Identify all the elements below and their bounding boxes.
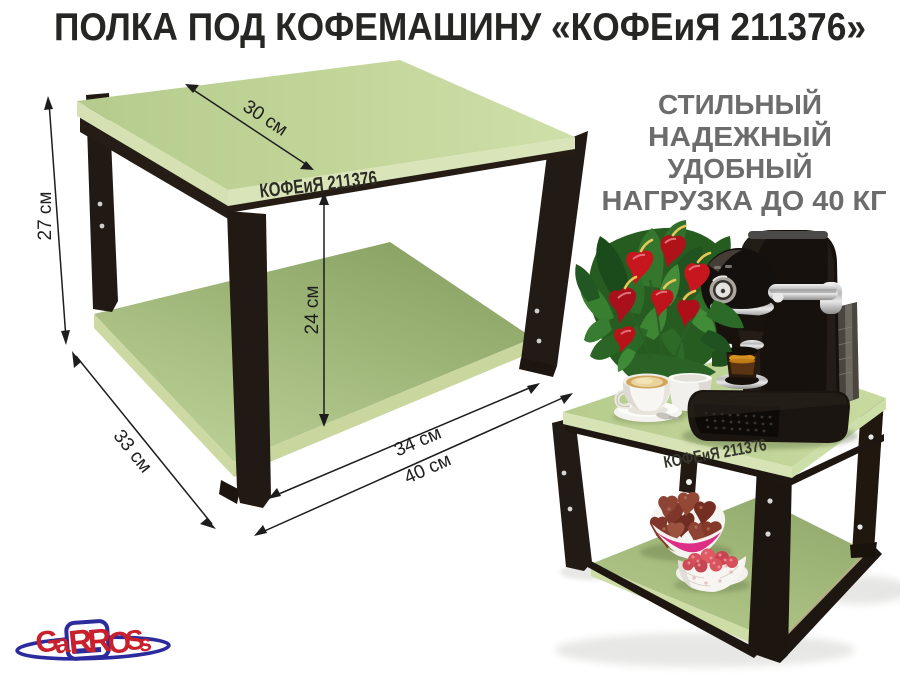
svg-text:НАДЕЖНЫЙ: НАДЕЖНЫЙ bbox=[648, 120, 832, 152]
svg-text:СТИЛЬНЫЙ: СТИЛЬНЫЙ bbox=[658, 88, 822, 120]
svg-text:27 см: 27 см bbox=[35, 192, 56, 241]
svg-text:НАГРУЗКА ДО 40 КГ: НАГРУЗКА ДО 40 КГ bbox=[602, 185, 887, 216]
svg-text:24 см: 24 см bbox=[302, 286, 323, 335]
svg-text:ПОЛКА ПОД КОФЕМАШИНУ «КОФЕиЯ 2: ПОЛКА ПОД КОФЕМАШИНУ «КОФЕиЯ 211376» bbox=[54, 6, 866, 49]
svg-text:УДОБНЫЙ: УДОБНЫЙ bbox=[668, 152, 813, 184]
